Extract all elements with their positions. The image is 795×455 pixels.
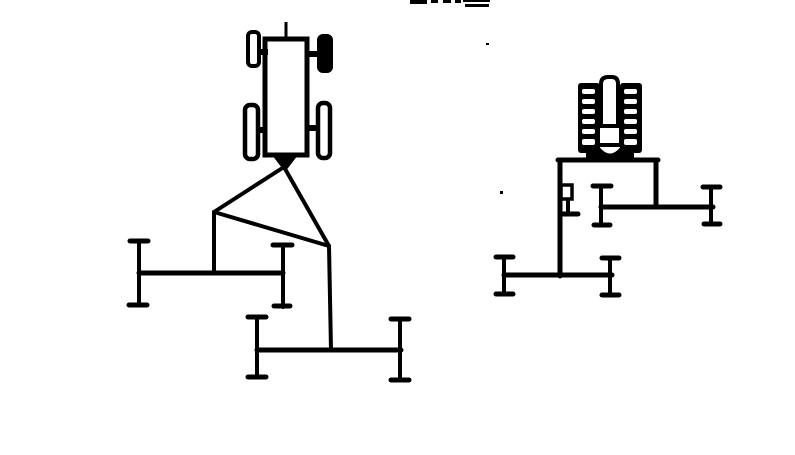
tire-tread-slot [624,99,637,104]
tire-tread-slot [582,99,595,104]
tire-tread-slot [624,139,637,145]
rear-gang-drop-link [329,246,331,350]
patent-style-diagram [0,0,795,455]
text-fragment [465,4,489,7]
tire-tread-slot [624,129,637,134]
cropped-text-fragments [410,0,503,194]
rear-left-wheel [245,105,258,159]
rear-gang-toolbar [248,317,409,380]
figure-rear-view [496,77,720,295]
tractor-body-rear [598,126,621,145]
tire-tread-slot [582,89,595,94]
text-fragment [410,0,427,4]
tire-tread-slot [582,139,595,145]
drawbar-left-link [214,167,284,212]
tractor-cab-rear [601,77,618,128]
frame-bracket [560,185,578,214]
stray-dot-icon [486,43,489,45]
front-right-wheel [319,36,331,71]
text-fragment [431,0,438,3]
bracket-box [561,185,572,199]
tire-tread-slot [624,109,637,114]
front-gang-toolbar [129,241,292,307]
tire-tread-slot [582,119,595,124]
front-left-wheel [248,32,259,66]
tire-tread-slot [624,119,637,124]
tire-tread-slot [582,109,595,114]
tire-tread-slot [582,129,595,134]
stray-dot-icon [500,191,503,194]
rear-right-wheel [318,103,330,158]
text-fragment [443,0,451,3]
tractor-body [265,39,307,155]
text-fragment [463,0,490,2]
drawing-sheet [0,0,795,455]
drawbar-triangle-linkage [214,167,331,350]
figure-plan-view [129,22,409,380]
tire-tread-slot [624,89,637,94]
text-fragment [455,0,461,3]
right-treaded-tire [620,83,642,153]
